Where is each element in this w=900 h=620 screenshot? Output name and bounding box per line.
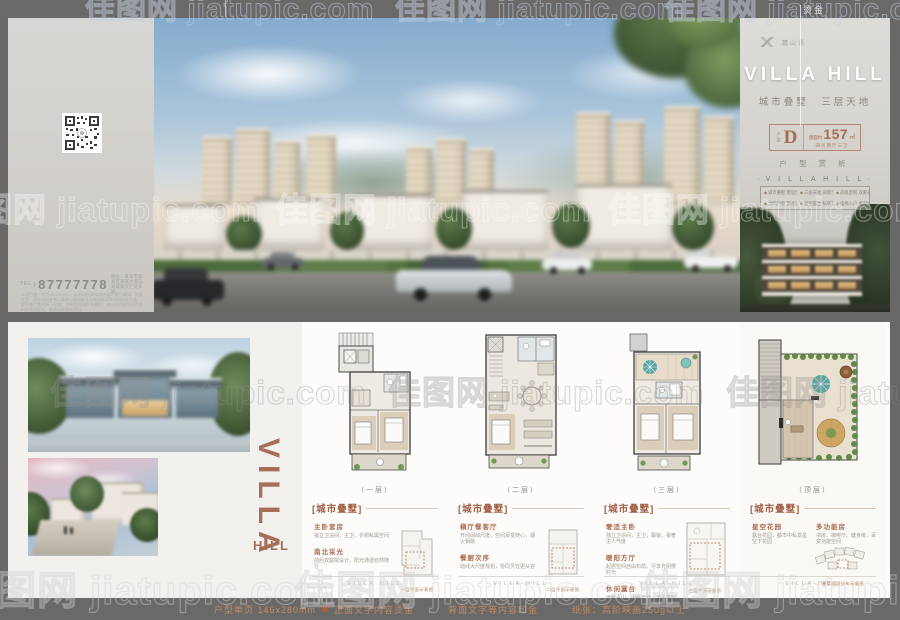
keyplan-drawing [543, 524, 583, 580]
render-ground [740, 304, 890, 312]
disclaimer-line-2: 部分图片素材源于网络，如有侵权请联系删除；本公司保留对宣传资料修改的权利，敬请留… [21, 302, 143, 312]
tree [436, 208, 472, 250]
feature-item: ◆电梯入户 尊崇归家 [833, 198, 869, 209]
tag-rule [512, 508, 584, 509]
contact-row: TEL 87777778 地址：某某市某某区某某大道与某某路交汇处东侧 [20, 274, 146, 294]
plan-tag: [城市叠墅] [312, 501, 362, 515]
feature-icon: ◆ [800, 190, 803, 195]
feature-icon: ◆ [800, 201, 803, 206]
hot-stamp-callout-line [800, 5, 801, 127]
feature-text: 全明户型 南北通透 [768, 201, 797, 207]
hero-photo-illustration [154, 18, 740, 312]
floorplan-panel-level3: （三层） [城市叠墅] 奢适主卧 独立卫浴间，主卫，飘窗，豪奢主人气度 暖阳方厅… [594, 322, 740, 598]
street-dusk-illustration [28, 458, 158, 556]
copy-body: 开间阔绰尺度，空间百变随心，烟火相融 [460, 533, 538, 545]
clubhouse-illustration [28, 338, 250, 452]
keyplan-drawing [681, 519, 729, 581]
unit-type-badge: 户型 D 建面约 157 ㎡ 四房两厅三卫 [769, 124, 861, 151]
car-grey-small [262, 252, 304, 274]
floor-plan-level2-drawing [482, 330, 560, 478]
floor-plan-level3-drawing [628, 330, 706, 478]
copy-body: 起居空间自由布局，尽享光阴慢时光 [606, 564, 676, 576]
top-print-bar [0, 0, 900, 18]
floor-plan-roof-drawing [751, 330, 863, 476]
print-spec-line: 户型单页 146x280mm 正面文字内容烫金 背面文字等内容印金 纸张：高阶映… [214, 603, 686, 616]
villa-building [354, 194, 432, 252]
brand-logo: 麓山语 [756, 32, 866, 52]
copy-heading: 主卧套房 [314, 521, 392, 531]
cluster-keyplan-drawing [814, 544, 872, 574]
copy-heading: 暖阳方厅 [606, 552, 676, 562]
tower-block [704, 116, 734, 204]
tag-rule [804, 508, 876, 509]
floorplan-panel-level1: （一层） [城市叠墅] 主卧套房 独立卫浴间，主卫，衣帽私属空间 南北采光 前后… [302, 322, 448, 598]
plan-caption: （顶层） [740, 485, 886, 495]
panel-footer: VILLA HILL [448, 581, 594, 587]
villa-building [164, 204, 224, 252]
feature-icon: ◆ [764, 201, 767, 206]
inner-spread: VILLA HILL [8, 322, 890, 598]
tag-rule [658, 508, 730, 509]
floor-plan-level1-drawing [336, 330, 414, 478]
building-render [740, 204, 890, 312]
tel-label: TEL [20, 282, 35, 287]
phone-number: 87777778 [38, 277, 108, 292]
gallery-panel: VILLA HILL [8, 322, 302, 598]
plan-tag: [城市叠墅] [750, 501, 800, 515]
tower-block [202, 136, 232, 204]
tree [70, 476, 104, 512]
front-cover-panel: 麓山语 VILLA HILL 城市叠墅 三层天地 户型 D 建面约 157 ㎡ … [740, 18, 890, 312]
brochure-canvas: 烫金 [0, 0, 900, 620]
room-layout: 四房两厅三卫 [816, 143, 849, 149]
copy-body: 露台花园，都市中私享星空下花园 [752, 533, 810, 545]
villa-building [462, 190, 548, 252]
feature-text: 星空露台 私属花园 [804, 201, 833, 207]
tree [330, 212, 364, 250]
keyplan-caption: 二层平面示意图 [543, 587, 583, 593]
address-text: 地址：某某市某某区某某大道与某某路交汇处东侧 [111, 274, 146, 294]
car-suv-dark [154, 266, 226, 310]
plan-caption: （三层） [594, 485, 740, 495]
tree [672, 204, 714, 250]
project-title: VILLA HILL [740, 64, 890, 86]
copy-heading: 横厅餐客厅 [460, 521, 538, 531]
area-value: 157 [823, 126, 848, 142]
villa-building [576, 184, 672, 252]
reflecting-ground [28, 440, 250, 452]
qr-code [62, 113, 102, 153]
tag-rule [366, 508, 438, 509]
copy-body: 前后双庭院设计，阳光通透自然随行 [314, 558, 392, 570]
feature-text: 电梯入户 尊崇归家 [840, 201, 869, 207]
copy-body: 独立卫浴间，主卫，衣帽私属空间 [314, 533, 392, 539]
panel-footrule [458, 576, 584, 577]
feature-item: ◆全明户型 南北通透 [761, 198, 797, 209]
person [64, 526, 67, 534]
feature-text: 前庭后院 双重礼序 [840, 190, 869, 196]
keyplan-caption: 三层平面示意图 [681, 588, 729, 594]
tree [226, 216, 262, 252]
panel-footrule [750, 576, 876, 577]
feature-item: ◆三层天地 阔景空间 [797, 187, 833, 198]
street-dusk-photo [28, 458, 158, 556]
fold-tick [225, 0, 226, 17]
copy-heading: 奢适主卧 [606, 521, 676, 531]
tower-block [236, 128, 270, 204]
brand-sub-text: HILL [253, 538, 290, 553]
plan-copy: 星空花园 露台花园，都市中私享星空下花园 [752, 521, 810, 552]
disclaimer-notes: 本项目推广名为VILLA HILL，本资料所发布的内容为要约邀请，相关文字、图片… [21, 292, 143, 312]
feature-icon: ◆ [836, 201, 839, 206]
copy-heading: 南北采光 [314, 546, 392, 556]
spec-front: 正面文字内容烫金 [334, 603, 414, 616]
feature-text: 城市叠墅 墅居生活 [768, 190, 797, 196]
unit-label: 户型 [776, 132, 782, 143]
plan-copy: 横厅餐客厅 开间阔绰尺度，空间百变随心，烟火相融 餐厨次序 动线大尺度规划，协同… [460, 521, 538, 577]
feature-item: ◆城市叠墅 墅居生活 [761, 187, 797, 198]
copy-body: 动线大尺度规划，协同烹饪更从容 [460, 564, 538, 570]
panel-footrule [604, 576, 730, 577]
hot-stamp-label: 烫金 [803, 3, 825, 16]
plan-caption: （一层） [302, 485, 448, 495]
cloud [174, 44, 364, 104]
panel-footrule [312, 576, 438, 577]
hero-photo [154, 18, 740, 312]
tower-block [306, 134, 336, 204]
floorplan-panel-roof: N [740, 322, 886, 598]
features-title: V I L L A H I L L [740, 176, 890, 183]
plan-tag: [城市叠墅] [604, 501, 654, 515]
keyplan-caption: 一层平面示意图 [397, 587, 437, 593]
back-cover-panel: TEL 87777778 地址：某某市某某区某某大道与某某路交汇处东侧 本项目推… [8, 18, 154, 312]
car-silver-sedan [396, 256, 514, 304]
tower-block [274, 140, 300, 204]
copy-heading: 星空花园 [752, 521, 810, 531]
spec-item: 户型单页 146x280mm [214, 603, 316, 616]
villa-building [254, 198, 324, 252]
person [70, 527, 73, 534]
plan-copy: 主卧套房 独立卫浴间，主卫，衣帽私属空间 南北采光 前后双庭院设计，阳光通透自然… [314, 521, 392, 577]
disclaimer-line-1: 本项目推广名为VILLA HILL，本资料所发布的内容为要约邀请，相关文字、图片… [21, 292, 143, 302]
project-slogan: 城市叠墅 三层天地 [740, 94, 890, 108]
feature-icon: ◆ [836, 190, 839, 195]
qr-code-graphic [64, 115, 100, 151]
panel-footer: VILLA HILL [302, 581, 448, 587]
plan-caption: （二层） [448, 485, 594, 495]
area-prefix: 建面约 [809, 135, 823, 141]
walking-path [32, 520, 121, 556]
features-box: ◆城市叠墅 墅居生活 ◆三层天地 阔景空间 ◆前庭后院 双重礼序 ◆全明户型 南… [760, 186, 870, 210]
clubhouse-photo [28, 338, 250, 452]
spec-square-icon [322, 606, 328, 612]
feature-text: 三层天地 阔景空间 [804, 190, 833, 196]
copy-heading: 餐厨次序 [460, 552, 538, 562]
plan-tag: [城市叠墅] [458, 501, 508, 515]
car-white-pickup [684, 250, 738, 274]
section-caption: 户 型 赏 析 [740, 158, 890, 169]
area-unit: ㎡ [849, 132, 855, 141]
tree [130, 508, 158, 542]
bottom-print-bar: 户型单页 146x280mm 正面文字内容烫金 背面文字等内容印金 纸张：高阶映… [0, 598, 900, 620]
tree [552, 204, 590, 248]
feature-item: ◆星空露台 私属花园 [797, 198, 833, 209]
spec-paper: 纸张：高阶映画250g以上 [572, 603, 686, 616]
feature-item: ◆前庭后院 双重礼序 [833, 187, 869, 198]
floorplan-panel-level2: （二层） [城市叠墅] 横厅餐客厅 开间阔绰尺度，空间百变随心，烟火相融 餐厨次… [448, 322, 594, 598]
feature-icon: ◆ [764, 190, 767, 195]
panel-footer: VILLA HILL [740, 581, 886, 587]
unit-letter: D [784, 128, 798, 147]
keyplan-drawing [397, 524, 437, 580]
copy-heading: 多功能房 [816, 521, 876, 531]
brand-name: 麓山语 [782, 38, 806, 47]
car-white [542, 252, 592, 276]
villa-facade [762, 244, 862, 296]
front-spread: TEL 87777778 地址：某某市某某区某某大道与某某路交汇处东侧 本项目推… [8, 18, 890, 312]
copy-body: 独立卫浴间，主卫，飘窗，豪奢主人气度 [606, 533, 676, 545]
mountain-logo-icon [756, 37, 778, 47]
spec-back: 背面文字等内容印金 [448, 603, 538, 616]
building-render-illustration [740, 204, 890, 312]
panel-footer: VILLA HILL [594, 581, 740, 587]
